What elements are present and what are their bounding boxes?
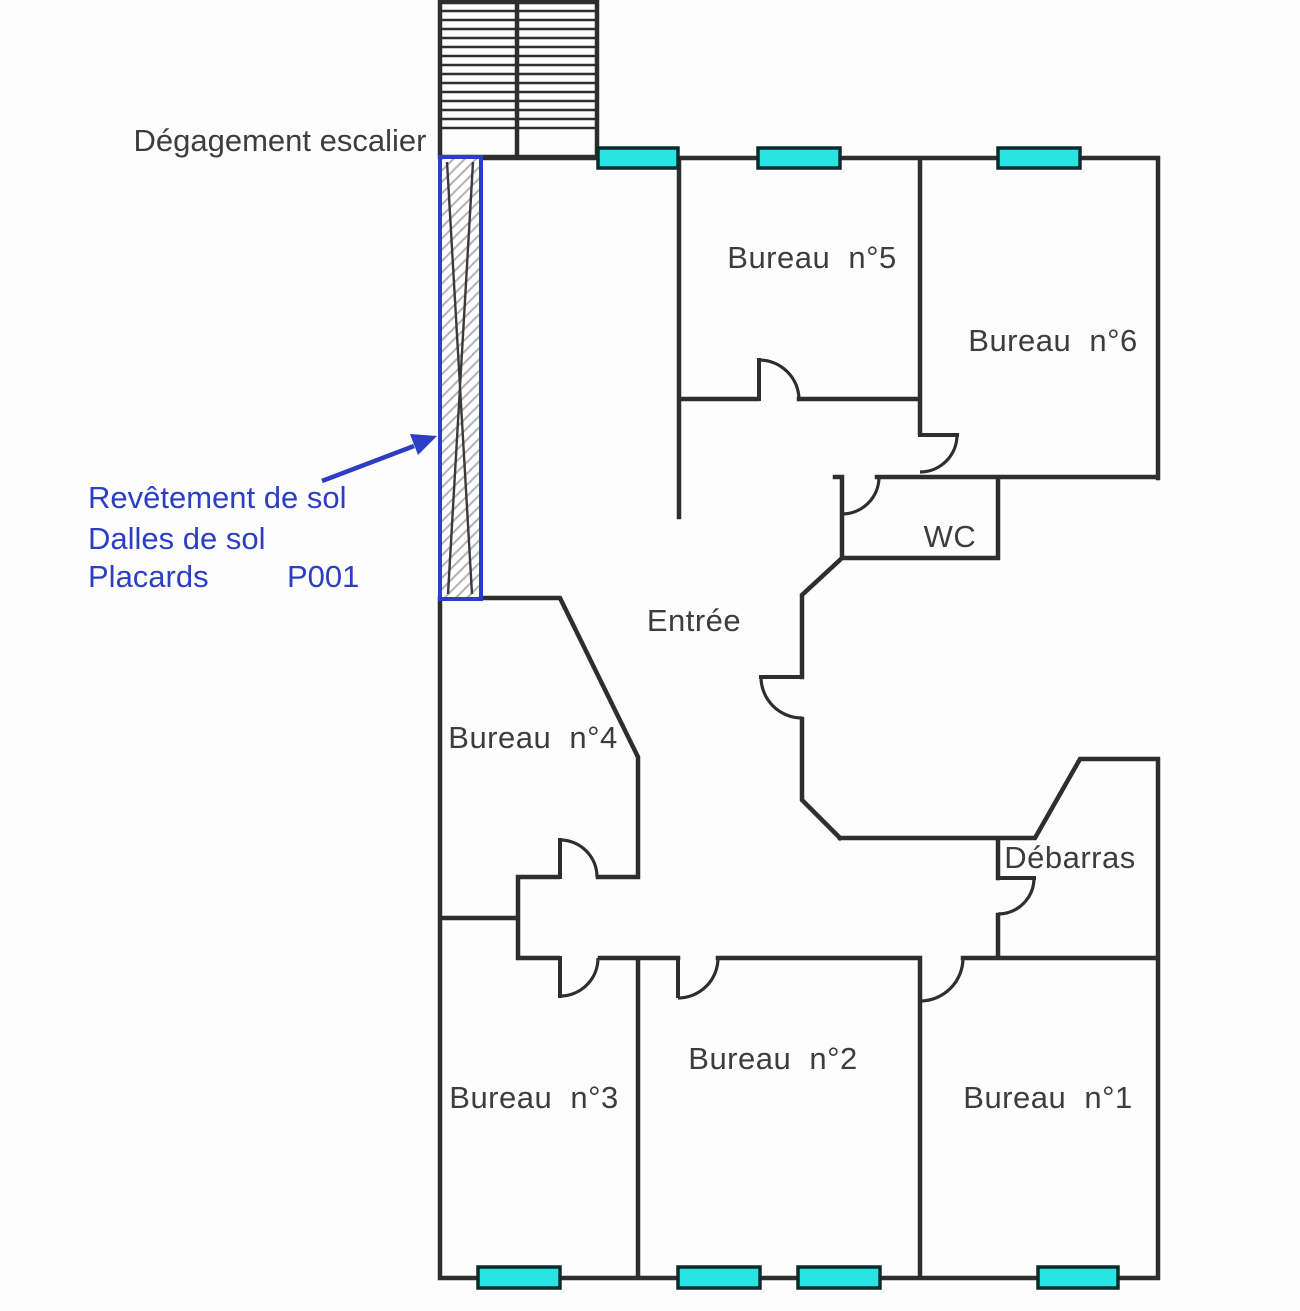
placard-hatched-strip [440, 157, 481, 599]
label-bureau2: Bureau n°2 [688, 1041, 857, 1076]
window-top-3 [998, 148, 1080, 168]
annotation-code: P001 [287, 559, 359, 594]
window-top-2 [758, 148, 840, 168]
label-bureau1: Bureau n°1 [963, 1080, 1132, 1115]
window-bottom-1 [478, 1267, 560, 1288]
label-bureau6: Bureau n°6 [968, 323, 1137, 358]
label-stairwell: Dégagement escalier [134, 123, 427, 158]
annotation-text: Revêtement de sol Dalles de sol Placards… [88, 480, 359, 594]
annotation-line-2: Dalles de sol [88, 521, 265, 556]
annotation-arrow [322, 434, 437, 481]
floor-plan-page: Dégagement escalier Bureau n°5 Bureau n°… [0, 0, 1300, 1311]
window-bottom-4 [1038, 1267, 1118, 1288]
window-bottom-3 [798, 1267, 880, 1288]
label-debarras: Débarras [1004, 840, 1136, 875]
annotation-line-1: Revêtement de sol [88, 480, 346, 515]
annotation-line-3: Placards [88, 559, 209, 594]
annotation-arrow-line [322, 446, 414, 481]
window-bottom-2 [678, 1267, 760, 1288]
annotation-arrow-head-icon [410, 434, 437, 455]
label-bureau3: Bureau n°3 [449, 1080, 618, 1115]
label-wc: WC [924, 519, 977, 554]
label-entree: Entrée [647, 603, 741, 638]
floor-plan: Dégagement escalier Bureau n°5 Bureau n°… [0, 0, 1300, 1311]
label-bureau4: Bureau n°4 [448, 720, 617, 755]
door-leaves [560, 360, 1034, 996]
label-bureau5: Bureau n°5 [727, 240, 896, 275]
door-arcs [560, 360, 1034, 1001]
window-top-1 [598, 148, 678, 168]
staircase [440, 2, 597, 157]
